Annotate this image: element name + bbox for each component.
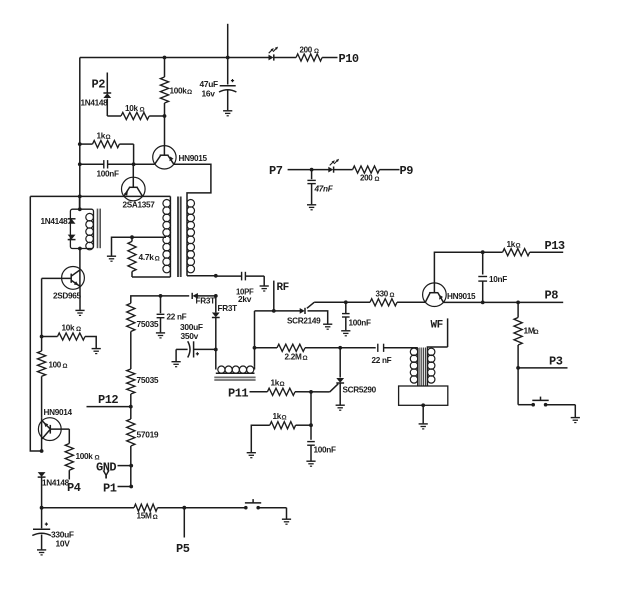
svg-text:100k: 100k xyxy=(76,452,94,461)
svg-text:HN9014: HN9014 xyxy=(44,408,73,417)
svg-text:Ω: Ω xyxy=(375,176,380,183)
svg-text:100nF: 100nF xyxy=(349,319,371,328)
svg-text:22 nF: 22 nF xyxy=(372,356,392,365)
svg-text:Ω: Ω xyxy=(76,326,81,333)
svg-text:100: 100 xyxy=(49,361,62,370)
svg-text:Ω: Ω xyxy=(516,243,521,250)
svg-text:2SD965: 2SD965 xyxy=(53,292,82,301)
svg-text:WF: WF xyxy=(431,320,443,332)
svg-text:FR3T: FR3T xyxy=(218,304,238,313)
svg-text:Ω: Ω xyxy=(155,256,160,263)
svg-text:1k: 1k xyxy=(507,240,516,249)
svg-text:100nF: 100nF xyxy=(97,170,119,179)
svg-text:22 nF: 22 nF xyxy=(167,313,187,322)
svg-text:Ω: Ω xyxy=(390,292,395,299)
svg-text:75035: 75035 xyxy=(137,375,159,385)
svg-text:47uF: 47uF xyxy=(200,79,219,89)
svg-text:100k: 100k xyxy=(170,87,188,96)
svg-text:Ω: Ω xyxy=(63,363,68,370)
svg-text:16v: 16v xyxy=(202,89,216,99)
svg-text:RF: RF xyxy=(277,282,289,294)
svg-text:P4: P4 xyxy=(67,481,81,495)
svg-text:P10: P10 xyxy=(339,52,359,66)
svg-text:P1: P1 xyxy=(103,482,117,496)
svg-text:P8: P8 xyxy=(545,289,559,303)
svg-text:P2: P2 xyxy=(92,78,106,92)
svg-text:HN9015: HN9015 xyxy=(179,154,208,163)
svg-text:2.2M: 2.2M xyxy=(285,353,302,362)
svg-text:P11: P11 xyxy=(228,387,248,401)
svg-text:1k: 1k xyxy=(271,379,280,388)
svg-text:P12: P12 xyxy=(98,393,118,407)
svg-text:2kv: 2kv xyxy=(238,294,252,304)
svg-text:10V: 10V xyxy=(56,539,71,549)
svg-text:Ω: Ω xyxy=(95,455,100,462)
svg-text:P5: P5 xyxy=(176,542,190,556)
svg-text:1N4148: 1N4148 xyxy=(41,217,69,226)
svg-text:Ω: Ω xyxy=(303,355,308,362)
svg-text:330: 330 xyxy=(376,290,389,299)
svg-text:350v: 350v xyxy=(181,331,199,341)
svg-text:57019: 57019 xyxy=(137,430,159,440)
svg-text:200: 200 xyxy=(300,46,313,55)
svg-text:SCR2149: SCR2149 xyxy=(287,317,321,326)
svg-text:Ω: Ω xyxy=(187,89,192,96)
svg-text:Ω: Ω xyxy=(280,381,285,388)
svg-text:1N4148: 1N4148 xyxy=(42,479,70,488)
svg-text:10k: 10k xyxy=(62,324,76,333)
svg-text:10k: 10k xyxy=(125,104,139,113)
svg-text:2SA1357: 2SA1357 xyxy=(123,201,156,210)
svg-text:Ω: Ω xyxy=(314,48,319,55)
svg-text:1k: 1k xyxy=(97,132,106,141)
svg-text:15M: 15M xyxy=(137,512,153,521)
svg-text:47nF: 47nF xyxy=(314,185,334,194)
svg-text:P3: P3 xyxy=(549,355,563,369)
svg-text:Ω: Ω xyxy=(153,514,158,521)
svg-text:1k: 1k xyxy=(273,412,282,421)
svg-text:Ω: Ω xyxy=(140,107,145,114)
svg-text:P7: P7 xyxy=(269,164,283,178)
svg-text:FR3T: FR3T xyxy=(196,297,216,306)
svg-text:10nF: 10nF xyxy=(489,275,507,284)
svg-text:P13: P13 xyxy=(545,239,565,253)
svg-text:4.7k: 4.7k xyxy=(139,252,155,262)
svg-text:Ω: Ω xyxy=(282,415,287,422)
svg-text:100nF: 100nF xyxy=(314,446,336,455)
svg-text:P9: P9 xyxy=(400,164,414,178)
svg-text:SCR5290: SCR5290 xyxy=(343,386,377,395)
svg-text:Ω: Ω xyxy=(534,329,539,336)
svg-text:HN9015: HN9015 xyxy=(447,292,476,301)
svg-text:Ω: Ω xyxy=(106,134,111,141)
svg-text:200: 200 xyxy=(360,174,373,183)
svg-text:75035: 75035 xyxy=(137,319,159,329)
svg-text:1N4148: 1N4148 xyxy=(81,99,109,108)
